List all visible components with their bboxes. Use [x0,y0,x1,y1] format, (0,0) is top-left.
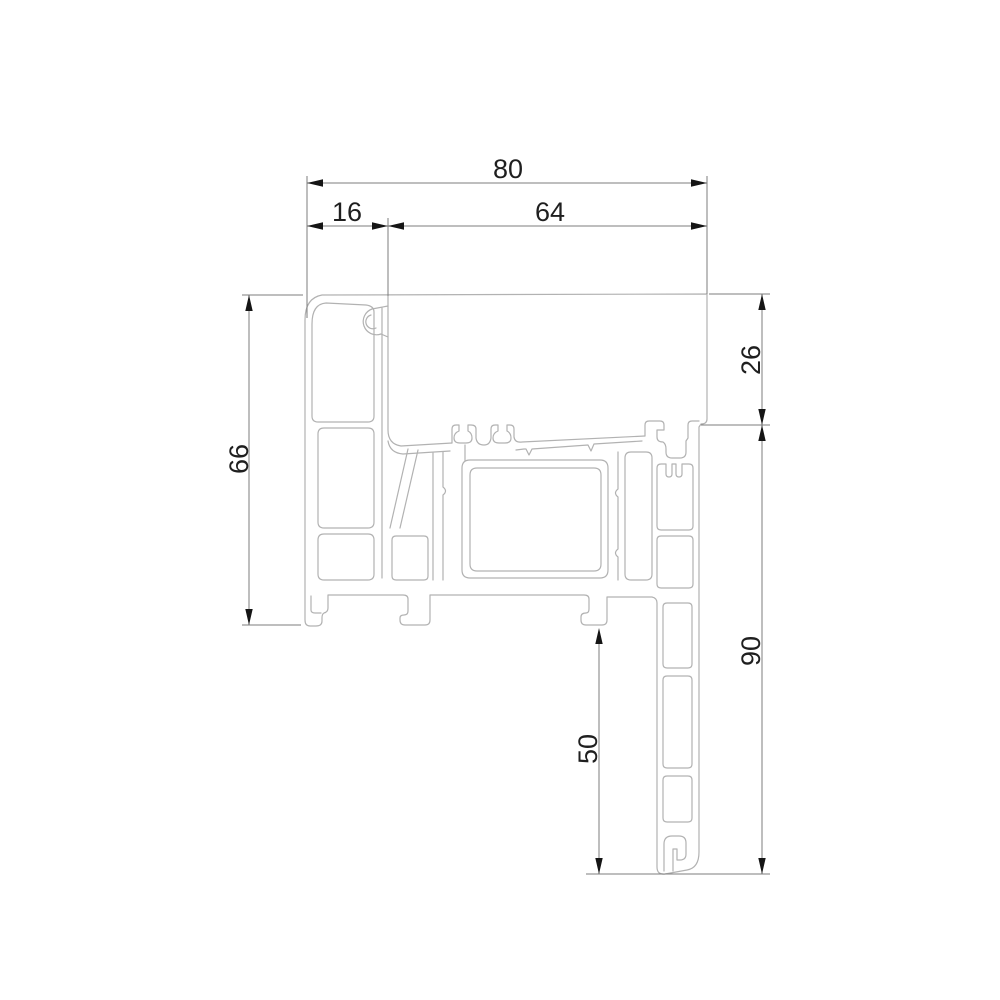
dim-label-width-left: 16 [332,197,362,227]
dim-label-height-right-upper: 26 [736,345,766,375]
dim-label-height-right-lower: 90 [736,636,766,666]
profile-drawing: 80 16 64 66 26 90 50 [0,0,1000,1000]
drawing-canvas: 80 16 64 66 26 90 50 [0,0,1000,1000]
dim-label-width-total: 80 [493,154,523,184]
dim-label-height-left: 66 [224,444,254,474]
dim-label-width-right: 64 [535,197,565,227]
dim-label-height-inner: 50 [573,734,603,764]
profile-outline [305,294,707,874]
profile-geometry [305,294,707,874]
